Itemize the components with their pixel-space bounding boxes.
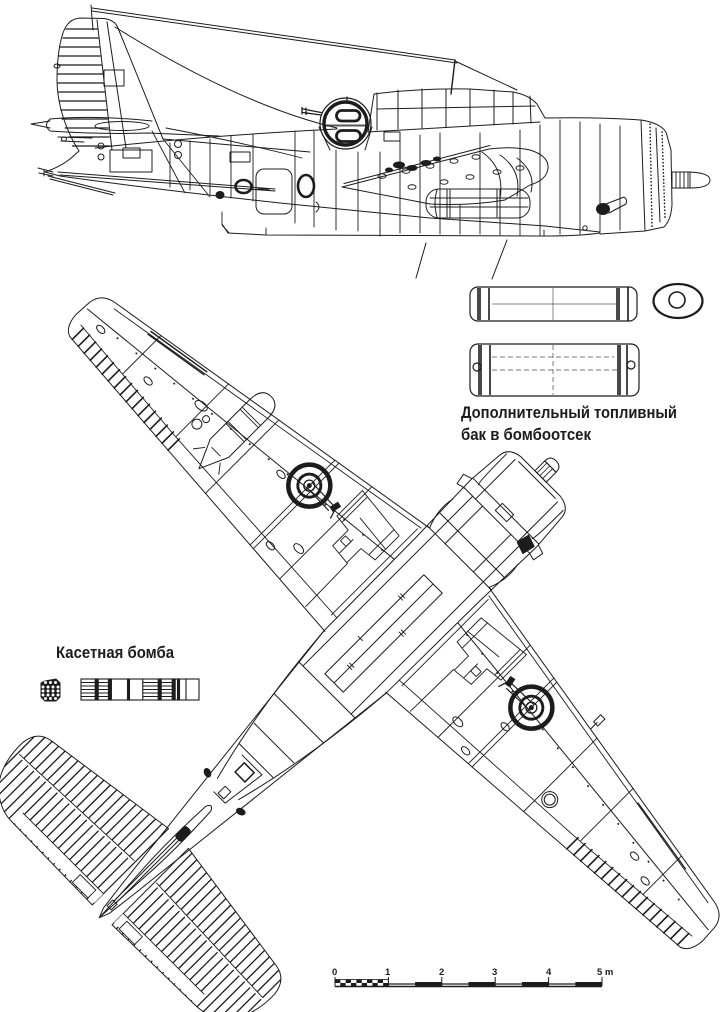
svg-text:5 m: 5 m (597, 967, 613, 978)
svg-text:3: 3 (492, 967, 497, 978)
svg-text:1: 1 (385, 967, 391, 978)
svg-text:бак в бомбоотсек: бак в бомбоотсек (461, 425, 591, 444)
svg-text:4: 4 (546, 967, 552, 978)
svg-text:0: 0 (332, 967, 337, 978)
svg-text:Дополнительный топливный: Дополнительный топливный (461, 403, 677, 422)
svg-text:2: 2 (439, 967, 444, 978)
svg-text:Касетная бомба: Касетная бомба (56, 643, 174, 662)
